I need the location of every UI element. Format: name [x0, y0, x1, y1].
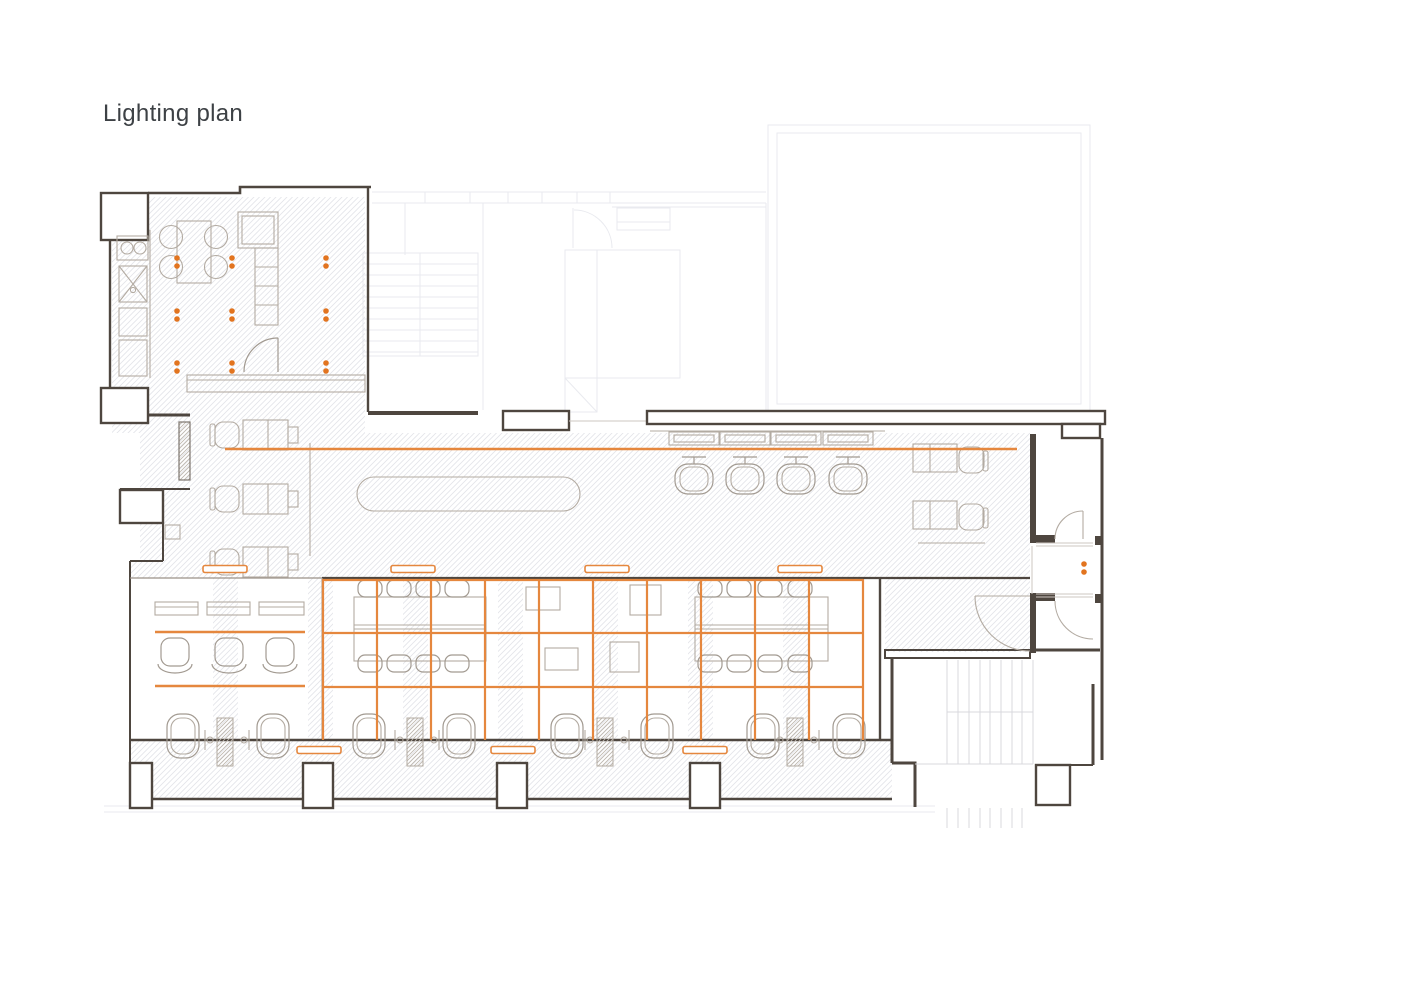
linear-light-fixture [778, 566, 822, 573]
office-band-furniture [155, 580, 828, 673]
floor-plan-svg [0, 0, 1415, 1000]
downlight [174, 255, 180, 261]
downlight [1081, 569, 1087, 575]
downlight [174, 263, 180, 269]
downlight [323, 360, 329, 366]
downlight [323, 316, 329, 322]
vestibule-lower-door [1055, 601, 1093, 639]
column-block [1036, 765, 1070, 805]
downlight [229, 263, 235, 269]
downlight [174, 360, 180, 366]
column-block [101, 388, 148, 423]
column-block [690, 763, 720, 808]
column-block [130, 763, 152, 808]
column-block [101, 193, 148, 240]
downlight [174, 368, 180, 374]
downlight [174, 316, 180, 322]
linear-light-fixture [391, 566, 435, 573]
column-block [303, 763, 333, 808]
linear-light-fixture [491, 747, 535, 754]
linear-light-fixture [203, 566, 247, 573]
downlight [323, 255, 329, 261]
downlight [229, 368, 235, 374]
lighting-plan-page: Lighting plan [0, 0, 1415, 1000]
linear-light-fixture [585, 566, 629, 573]
column-block [497, 763, 527, 808]
downlight [229, 255, 235, 261]
downlight [229, 308, 235, 314]
column-block [120, 490, 163, 523]
downlight [174, 308, 180, 314]
downlight [323, 368, 329, 374]
linear-light-fixture [297, 747, 341, 754]
downlight [229, 316, 235, 322]
stair-treads [915, 660, 1033, 828]
downlight [323, 308, 329, 314]
downlight [229, 360, 235, 366]
downlight [323, 263, 329, 269]
vestibule-upper-door [1055, 511, 1083, 539]
downlight [1081, 561, 1087, 567]
linear-light-fixture [683, 747, 727, 754]
